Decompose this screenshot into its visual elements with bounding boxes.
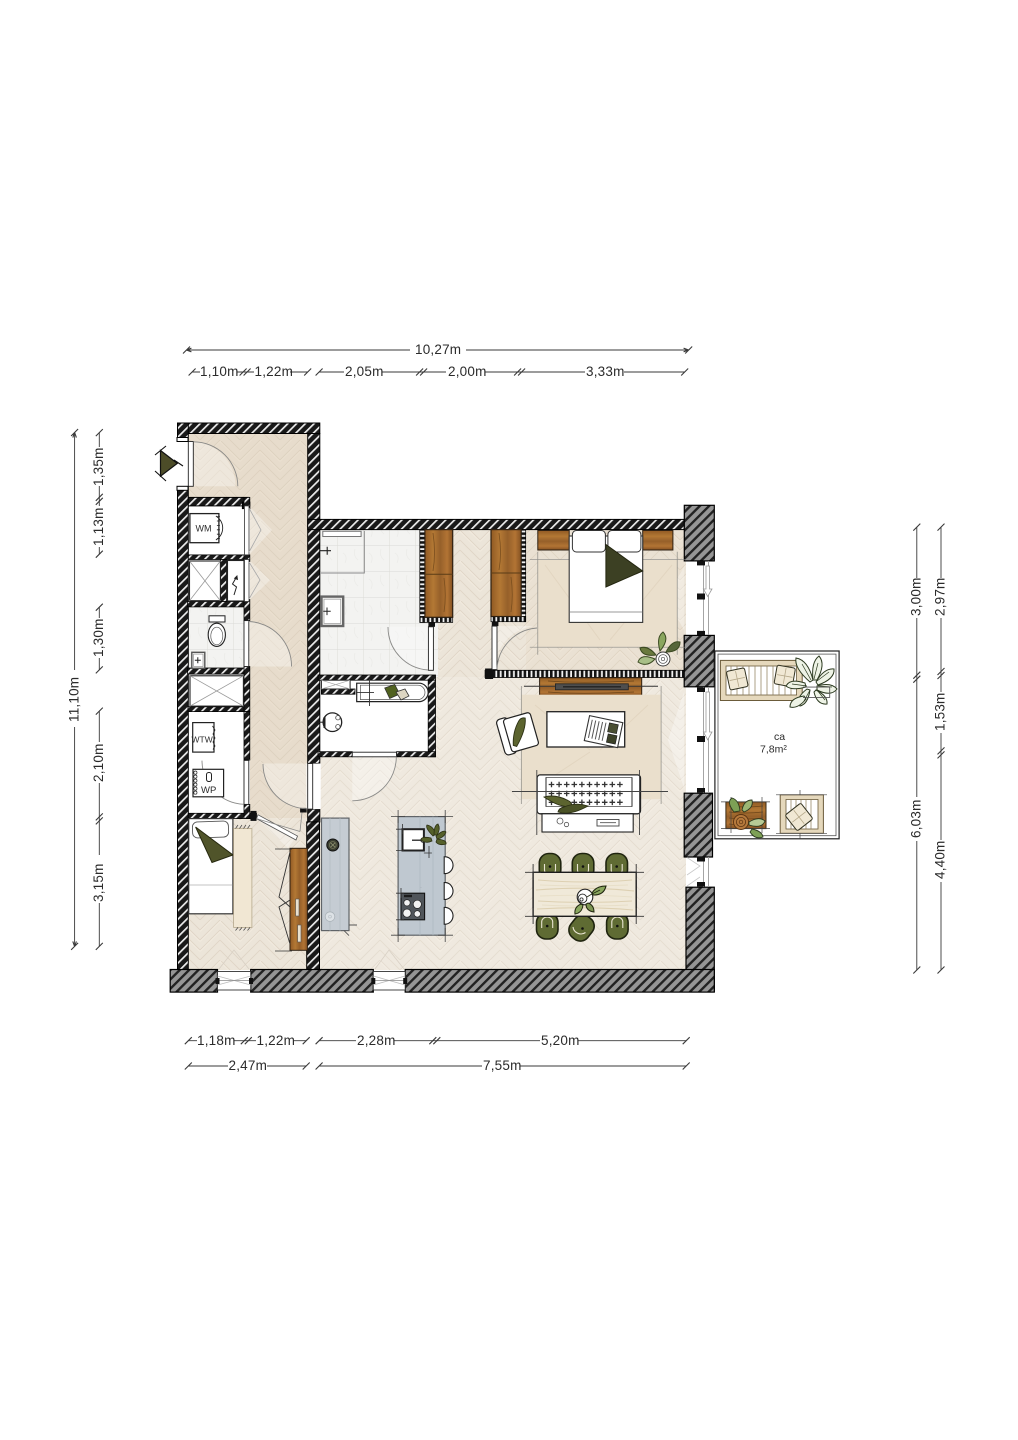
svg-text:1,18m: 1,18m	[197, 1033, 236, 1048]
svg-text:1,30m: 1,30m	[91, 618, 106, 657]
svg-text:5,20m: 5,20m	[541, 1033, 580, 1048]
svg-text:2,10m: 2,10m	[91, 743, 106, 782]
svg-text:2,00m: 2,00m	[448, 364, 487, 379]
svg-text:6,03m: 6,03m	[909, 799, 924, 838]
svg-text:10,27m: 10,27m	[415, 342, 461, 357]
svg-text:WP: WP	[201, 785, 216, 796]
svg-text:1,22m: 1,22m	[255, 364, 294, 379]
svg-text:3,33m: 3,33m	[586, 364, 625, 379]
svg-text:1,13m: 1,13m	[91, 507, 106, 546]
svg-text:WTW: WTW	[192, 735, 213, 745]
svg-text:11,10m: 11,10m	[67, 677, 82, 722]
svg-text:1,22m: 1,22m	[257, 1033, 296, 1048]
svg-text:2,05m: 2,05m	[345, 364, 384, 379]
svg-text:1,53m: 1,53m	[933, 692, 948, 731]
svg-text:7,8m²: 7,8m²	[760, 744, 787, 756]
svg-text:7,55m: 7,55m	[483, 1058, 522, 1073]
svg-text:3,15m: 3,15m	[91, 863, 106, 902]
svg-text:4,40m: 4,40m	[933, 840, 948, 879]
svg-text:2,97m: 2,97m	[933, 577, 948, 616]
svg-text:ca: ca	[774, 731, 785, 743]
svg-text:1,10m: 1,10m	[200, 364, 239, 379]
svg-text:1,35m: 1,35m	[91, 447, 106, 486]
svg-text:WM: WM	[196, 524, 212, 534]
svg-text:2,47m: 2,47m	[229, 1058, 268, 1073]
svg-text:3,00m: 3,00m	[909, 577, 924, 616]
svg-text:2,28m: 2,28m	[357, 1033, 396, 1048]
